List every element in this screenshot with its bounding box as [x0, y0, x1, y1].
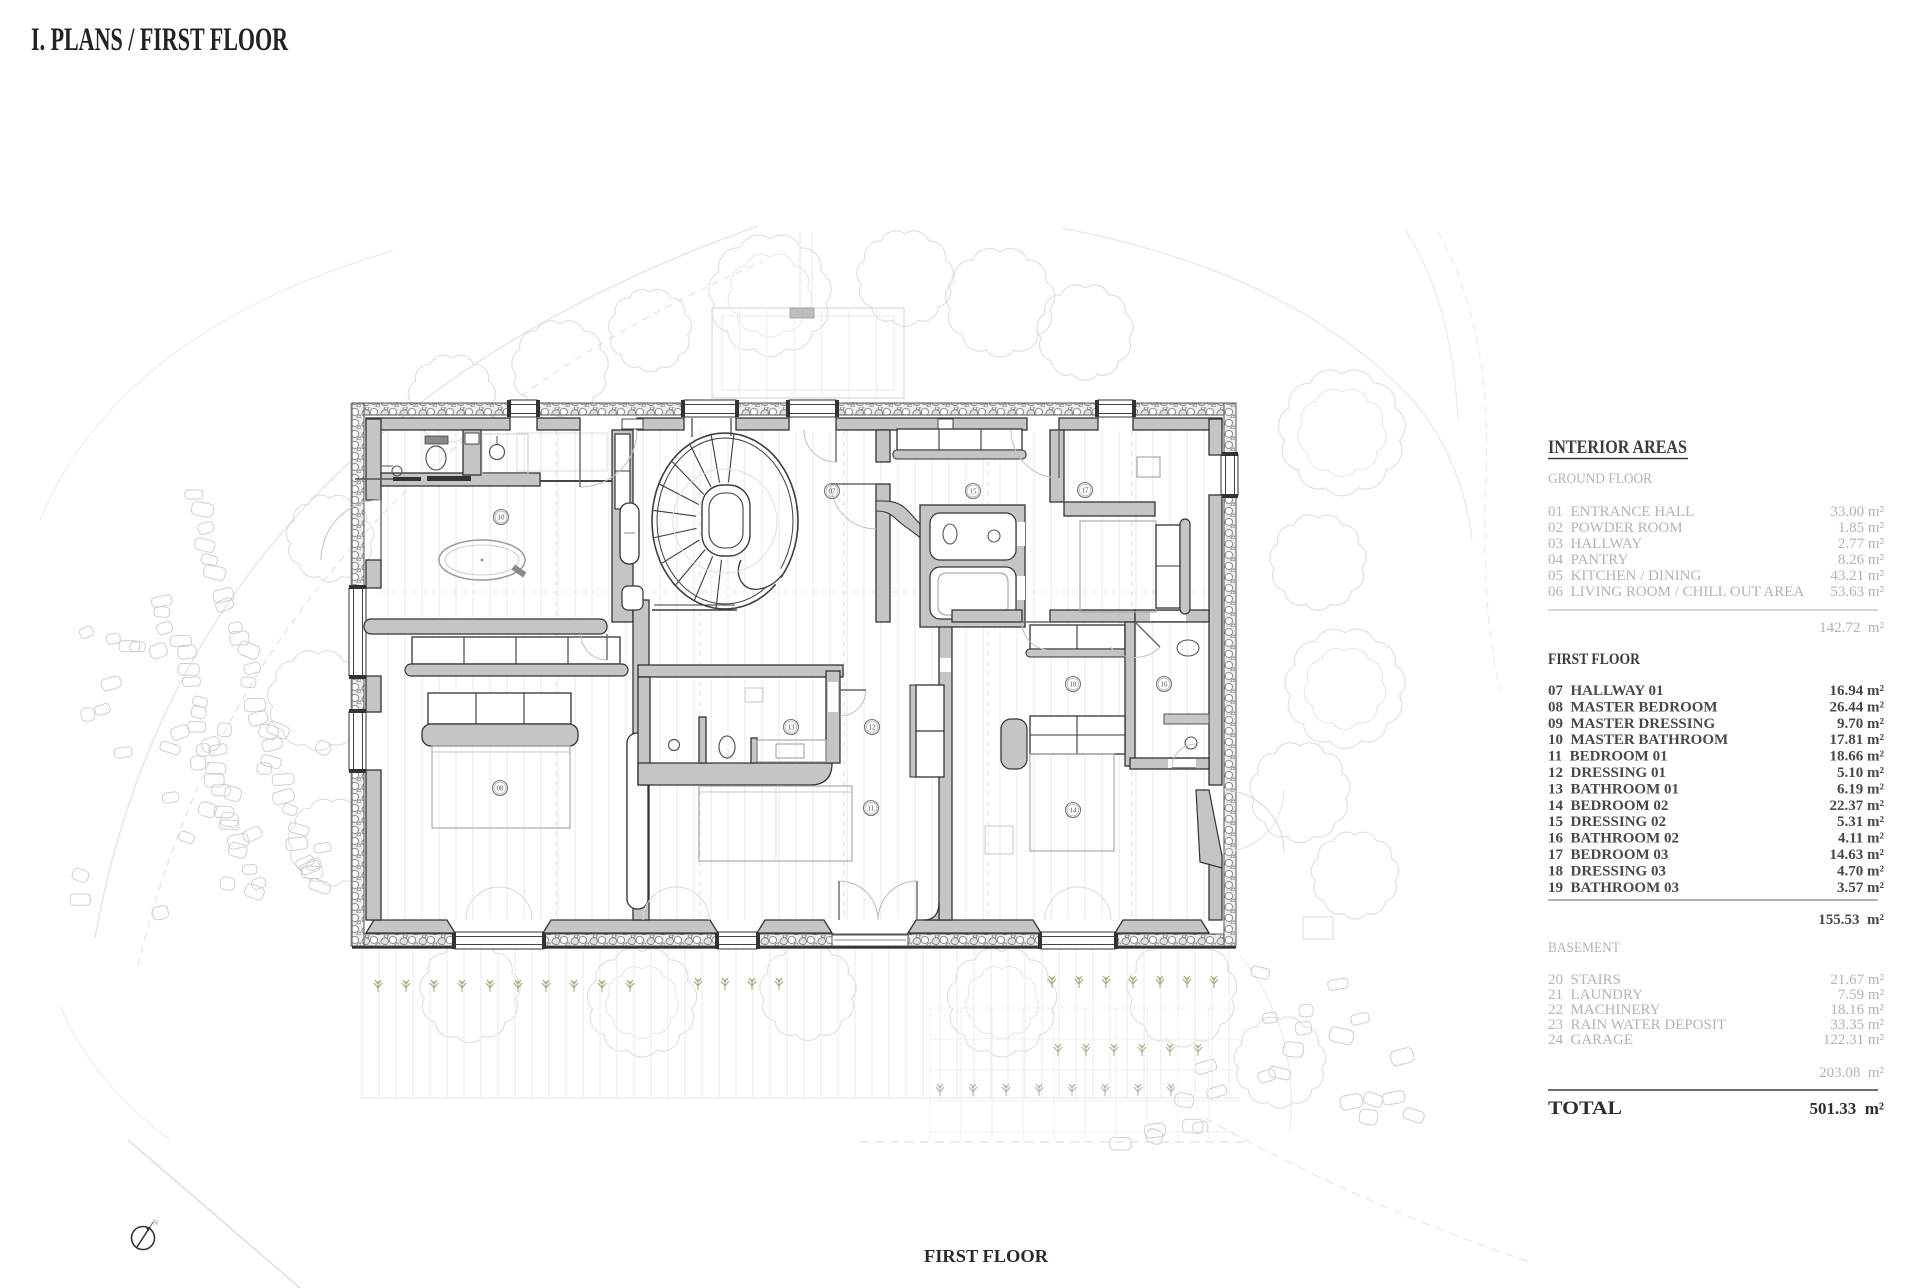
svg-text:18.16 m²: 18.16 m² [1830, 1002, 1884, 1018]
svg-text:6.19 m²: 6.19 m² [1837, 781, 1884, 797]
svg-text:142.72 m²: 142.72 m² [1819, 620, 1884, 636]
svg-text:33.00 m²: 33.00 m² [1830, 504, 1884, 520]
svg-text:33.35 m²: 33.35 m² [1830, 1017, 1884, 1033]
svg-text:22 MACHINERY: 22 MACHINERY [1548, 1002, 1661, 1018]
svg-text:BASEMENT: BASEMENT [1548, 940, 1620, 956]
svg-text:16.94 m²: 16.94 m² [1830, 683, 1885, 699]
svg-text:43.21 m²: 43.21 m² [1830, 568, 1884, 584]
svg-text:21 LAUNDRY: 21 LAUNDRY [1548, 987, 1643, 1003]
svg-text:18.66 m²: 18.66 m² [1830, 749, 1885, 765]
svg-text:GROUND FLOOR: GROUND FLOOR [1548, 471, 1652, 487]
svg-text:13 BATHROOM 01: 13 BATHROOM 01 [1548, 781, 1679, 797]
svg-text:09 MASTER DRESSING: 09 MASTER DRESSING [1548, 716, 1715, 732]
svg-text:08: 08 [497, 785, 505, 793]
svg-text:1.85 m²: 1.85 m² [1838, 520, 1885, 536]
svg-text:10: 10 [498, 514, 506, 522]
svg-text:N: N [153, 1219, 158, 1227]
svg-text:14 BEDROOM 02: 14 BEDROOM 02 [1548, 798, 1668, 814]
svg-text:501.33 m²: 501.33 m² [1809, 1099, 1884, 1118]
svg-text:05 KITCHEN / DINING: 05 KITCHEN / DINING [1548, 568, 1701, 584]
svg-text:16: 16 [1161, 681, 1169, 689]
svg-text:3.57 m²: 3.57 m² [1837, 880, 1884, 896]
svg-text:4.70 m²: 4.70 m² [1837, 863, 1884, 879]
svg-text:19 BATHROOM 03: 19 BATHROOM 03 [1548, 880, 1679, 896]
svg-text:11: 11 [868, 805, 875, 813]
svg-text:53.63 m²: 53.63 m² [1830, 584, 1884, 600]
svg-text:11 BEDROOM 01: 11 BEDROOM 01 [1548, 749, 1668, 765]
svg-text:14: 14 [1070, 807, 1078, 815]
svg-text:9.70 m²: 9.70 m² [1837, 716, 1884, 732]
svg-text:122.31 m²: 122.31 m² [1823, 1032, 1885, 1048]
svg-text:14.63 m²: 14.63 m² [1830, 847, 1885, 863]
svg-text:FIRST FLOOR: FIRST FLOOR [924, 1246, 1049, 1266]
svg-text:07: 07 [829, 488, 837, 496]
svg-text:15 DRESSING 02: 15 DRESSING 02 [1548, 814, 1666, 830]
svg-text:08 MASTER BEDROOM: 08 MASTER BEDROOM [1548, 699, 1718, 715]
svg-text:4.11 m²: 4.11 m² [1838, 831, 1885, 847]
svg-text:24 GARAGE: 24 GARAGE [1548, 1032, 1633, 1048]
svg-text:12 DRESSING 01: 12 DRESSING 01 [1548, 765, 1666, 781]
svg-text:22.37 m²: 22.37 m² [1830, 798, 1885, 814]
svg-text:5.31 m²: 5.31 m² [1837, 814, 1884, 830]
svg-text:2.77 m²: 2.77 m² [1838, 536, 1885, 552]
svg-text:16 BATHROOM 02: 16 BATHROOM 02 [1548, 831, 1679, 847]
svg-text:15: 15 [970, 488, 978, 496]
svg-text:5.10 m²: 5.10 m² [1837, 765, 1884, 781]
svg-text:21.67 m²: 21.67 m² [1830, 972, 1884, 988]
svg-text:26.44 m²: 26.44 m² [1830, 699, 1885, 715]
svg-text:17 BEDROOM 03: 17 BEDROOM 03 [1548, 847, 1668, 863]
svg-text:17: 17 [1082, 487, 1090, 495]
svg-text:07 HALLWAY 01: 07 HALLWAY 01 [1548, 683, 1663, 699]
svg-text:01 ENTRANCE HALL: 01 ENTRANCE HALL [1548, 504, 1694, 520]
svg-text:TOTAL: TOTAL [1548, 1098, 1622, 1119]
svg-text:INTERIOR AREAS: INTERIOR AREAS [1548, 437, 1687, 458]
svg-text:10 MASTER BATHROOM: 10 MASTER BATHROOM [1548, 732, 1728, 748]
svg-text:FIRST FLOOR: FIRST FLOOR [1548, 651, 1640, 668]
svg-text:18: 18 [1070, 681, 1078, 689]
svg-text:03 HALLWAY: 03 HALLWAY [1548, 536, 1642, 552]
svg-text:06 LIVING ROOM / CHILL OUT AR: 06 LIVING ROOM / CHILL OUT AREA [1548, 584, 1804, 600]
svg-text:18 DRESSING 03: 18 DRESSING 03 [1548, 863, 1666, 879]
svg-text:23 RAIN WATER DEPOSIT: 23 RAIN WATER DEPOSIT [1548, 1017, 1726, 1033]
svg-text:155.53 m²: 155.53 m² [1818, 912, 1884, 928]
svg-text:7.59 m²: 7.59 m² [1838, 987, 1885, 1003]
svg-text:02 POWDER ROOM: 02 POWDER ROOM [1548, 520, 1683, 536]
svg-text:04 PANTRY: 04 PANTRY [1548, 552, 1628, 568]
svg-text:203.08 m²: 203.08 m² [1819, 1065, 1884, 1081]
svg-text:13: 13 [788, 724, 796, 732]
svg-text:12: 12 [869, 724, 877, 732]
svg-text:17.81 m²: 17.81 m² [1830, 732, 1885, 748]
svg-text:8.26 m²: 8.26 m² [1838, 552, 1885, 568]
svg-text:I. PLANS / FIRST FLOOR: I. PLANS / FIRST FLOOR [31, 22, 289, 58]
svg-text:20 STAIRS: 20 STAIRS [1548, 972, 1621, 988]
